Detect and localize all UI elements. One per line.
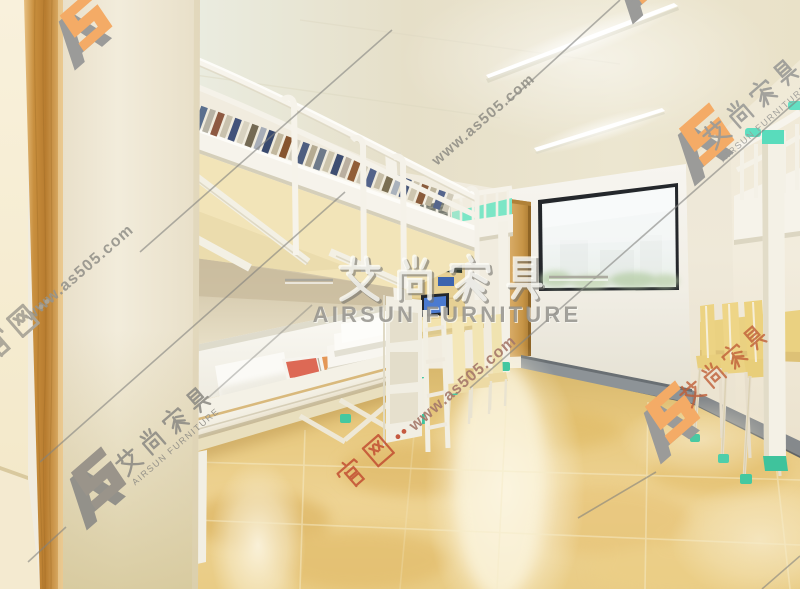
svg-text:AIRSUN FURNITURE: AIRSUN FURNITURE: [313, 302, 582, 327]
